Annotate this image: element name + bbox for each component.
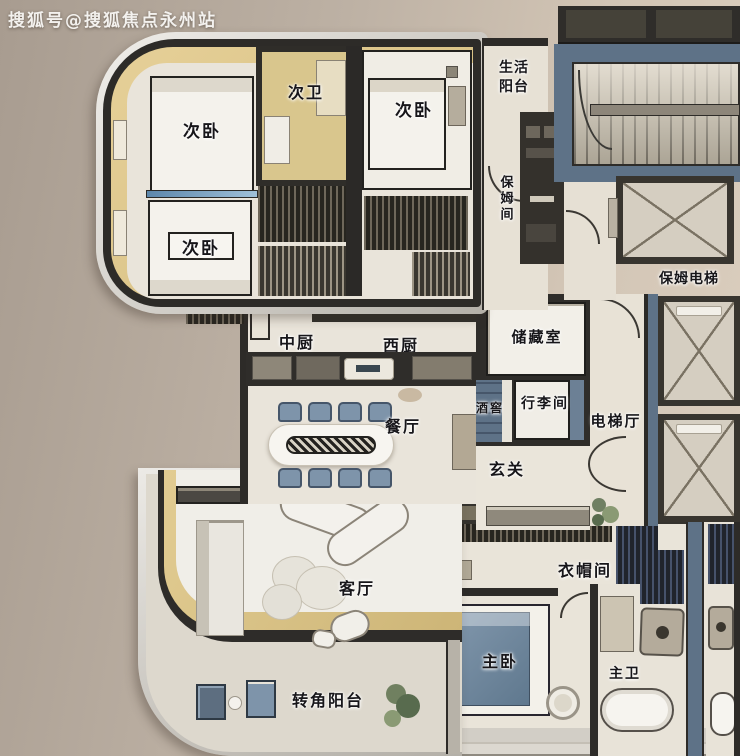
dining-table-runner [286, 436, 376, 454]
bed-secondary [368, 78, 446, 170]
kitchen-appliance [296, 356, 340, 380]
dining-chair [278, 468, 302, 488]
elevator-door [608, 198, 618, 238]
kitchen-island-slab [356, 365, 380, 372]
floor-plan: 衣帽间 主卧 主卫 客厅 转角阳台 中厨 [0, 0, 740, 756]
elevator-door [676, 306, 722, 316]
plant [384, 710, 401, 727]
round-chair-cushion [554, 694, 572, 712]
toilet-drain [716, 622, 726, 632]
room-label-bedroom2-right: 次卧 [384, 95, 444, 121]
shower [600, 596, 634, 652]
wardrobe [640, 550, 684, 604]
elevator-door [676, 424, 722, 434]
room-label-wine-cellar: 酒窖 [468, 397, 512, 417]
room-label-bedroom2-bottom: 次卧 [168, 232, 234, 260]
console-table [486, 506, 590, 526]
dining-chair [278, 402, 302, 422]
room-label-life-balcony: 生活阳台 [492, 56, 536, 100]
room-label-nanny-elevator: 保姆电梯 [652, 268, 726, 288]
cabinet-front [530, 196, 554, 202]
dining-chair [308, 402, 332, 422]
wall-segment [240, 300, 248, 504]
dining-chair [308, 468, 332, 488]
room-label-bath2: 次卫 [278, 80, 334, 102]
wardrobe [258, 246, 346, 296]
plant [592, 514, 604, 526]
wall-blue-column [686, 516, 704, 756]
room-label-nanny-room: 保姆间 [494, 166, 516, 232]
nanny-elevator-shaft [616, 176, 734, 264]
bathtub [600, 688, 674, 732]
stair-landing-rail [590, 104, 740, 116]
dining-chair [368, 468, 392, 488]
wardrobe [364, 196, 468, 250]
watermark: 搜狐号@搜狐焦点永州站 [8, 6, 217, 31]
room-label-cloakroom: 衣帽间 [550, 556, 620, 582]
balcony-cup [228, 696, 242, 710]
kitchen-appliance [412, 356, 472, 380]
tv-cabinet [196, 520, 244, 636]
room-label-elevator-hall: 电梯厅 [584, 408, 648, 432]
wall-column [346, 46, 362, 296]
wall-segment [482, 38, 548, 46]
balcony-divider-wall [446, 640, 460, 754]
room-label-luggage: 行李间 [514, 392, 576, 414]
wall-blue-strip [648, 294, 658, 526]
wardrobe [258, 186, 346, 242]
room-label-foyer: 玄关 [480, 456, 534, 480]
decor-bowl [398, 388, 422, 402]
closet [113, 210, 127, 256]
nightstand [448, 86, 466, 126]
window-glass-strip [146, 190, 258, 198]
cabinet-front [526, 126, 540, 138]
room-label-storage: 储藏室 [506, 324, 568, 348]
toilet-drain [656, 626, 669, 639]
wardrobe [708, 524, 734, 584]
sink [264, 116, 290, 164]
wall-icon [446, 66, 458, 78]
core-header-inset [656, 10, 732, 38]
room-label-master-bedroom: 主卧 [472, 648, 528, 672]
wall-segment [734, 516, 740, 756]
wardrobe [412, 252, 470, 296]
balcony-cabinet [196, 684, 226, 720]
room-label-dining: 餐厅 [376, 414, 430, 436]
room-label-bedroom2-top: 次卧 [170, 117, 234, 141]
rug [262, 584, 302, 620]
sideboard [452, 414, 478, 470]
wall-segment [590, 584, 598, 756]
room-label-chinese-kitchen: 中厨 [268, 330, 326, 352]
plant [602, 506, 619, 523]
room-label-living: 客厅 [330, 576, 384, 598]
dining-chair [338, 402, 362, 422]
cabinet-front [526, 224, 556, 242]
dining-chair [338, 468, 362, 488]
balcony-table [246, 680, 276, 718]
bed-master-pillow [452, 612, 530, 626]
room-label-corner-balcony: 转角阳台 [286, 688, 370, 710]
bathtub [710, 692, 736, 736]
core-header-inset [566, 10, 646, 38]
kitchen-appliance [252, 356, 292, 380]
room-label-master-bath: 主卫 [600, 662, 650, 684]
closet [113, 120, 127, 160]
